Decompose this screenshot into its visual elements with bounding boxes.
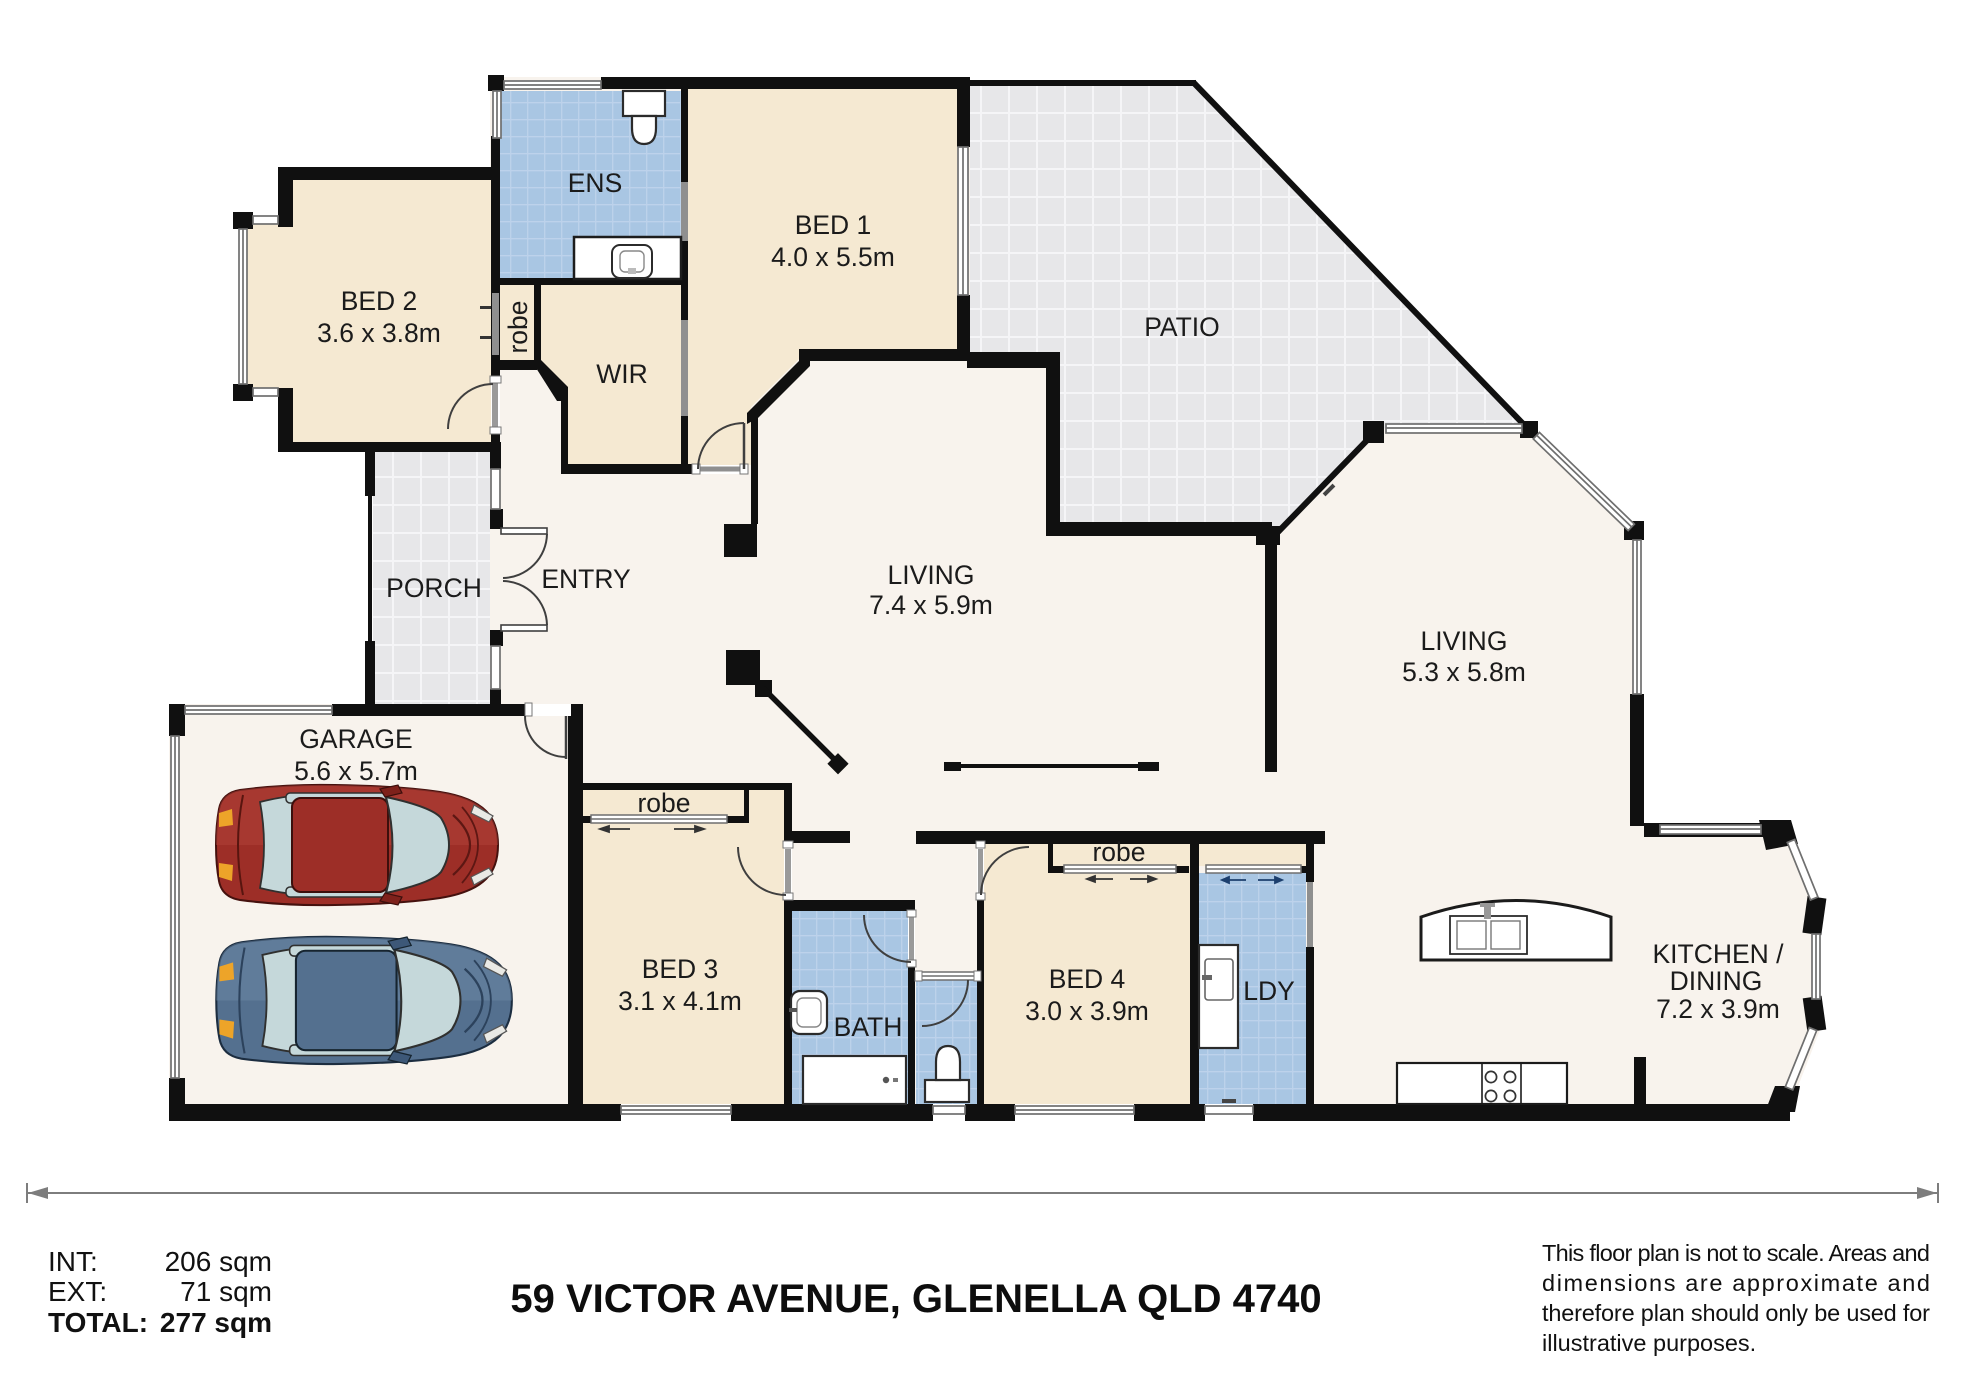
svg-text:59 VICTOR AVENUE, GLENELLA QLD: 59 VICTOR AVENUE, GLENELLA QLD 4740 [510, 1277, 1321, 1321]
svg-text:BED 2: BED 2 [341, 286, 418, 316]
svg-text:WIR: WIR [596, 359, 648, 389]
svg-text:277 sqm: 277 sqm [160, 1307, 272, 1338]
svg-text:BED 1: BED 1 [795, 210, 872, 240]
svg-text:KITCHEN /: KITCHEN / [1652, 939, 1784, 969]
svg-text:3.1 x 4.1m: 3.1 x 4.1m [618, 986, 742, 1016]
svg-text:71 sqm: 71 sqm [180, 1276, 272, 1307]
svg-text:therefore plan should only be: therefore plan should only be used for [1542, 1300, 1930, 1326]
svg-text:EXT:: EXT: [48, 1276, 107, 1307]
svg-text:GARAGE: GARAGE [299, 724, 412, 754]
svg-text:PORCH: PORCH [386, 573, 482, 603]
svg-text:5.6 x 5.7m: 5.6 x 5.7m [294, 756, 418, 786]
svg-text:LDY: LDY [1243, 976, 1295, 1006]
svg-text:LIVING: LIVING [888, 560, 975, 590]
svg-text:BED 4: BED 4 [1049, 964, 1126, 994]
svg-text:3.6 x 3.8m: 3.6 x 3.8m [317, 318, 441, 348]
svg-text:ENS: ENS [568, 168, 623, 198]
svg-text:robe: robe [1092, 837, 1145, 867]
svg-text:ENTRY: ENTRY [541, 564, 631, 594]
svg-text:robe: robe [503, 300, 533, 353]
svg-text:robe: robe [637, 788, 690, 818]
svg-text:This floor plan is not to scal: This floor plan is not to scale. Areas a… [1542, 1240, 1930, 1266]
svg-text:7.4 x 5.9m: 7.4 x 5.9m [869, 590, 993, 620]
svg-text:5.3 x 5.8m: 5.3 x 5.8m [1402, 657, 1526, 687]
svg-text:4.0 x 5.5m: 4.0 x 5.5m [771, 242, 895, 272]
svg-text:dimensions are approximate and: dimensions are approximate and [1542, 1270, 1930, 1296]
svg-text:206 sqm: 206 sqm [165, 1246, 272, 1277]
svg-text:INT:: INT: [48, 1246, 98, 1277]
svg-text:PATIO: PATIO [1144, 312, 1220, 342]
svg-text:illustrative purposes.: illustrative purposes. [1542, 1330, 1756, 1356]
svg-text:LIVING: LIVING [1421, 626, 1508, 656]
svg-text:TOTAL:: TOTAL: [48, 1307, 148, 1338]
svg-text:7.2 x 3.9m: 7.2 x 3.9m [1656, 994, 1780, 1024]
svg-text:BATH: BATH [834, 1012, 903, 1042]
svg-text:BED 3: BED 3 [642, 954, 719, 984]
svg-text:3.0 x 3.9m: 3.0 x 3.9m [1025, 996, 1149, 1026]
svg-text:DINING: DINING [1670, 966, 1763, 996]
